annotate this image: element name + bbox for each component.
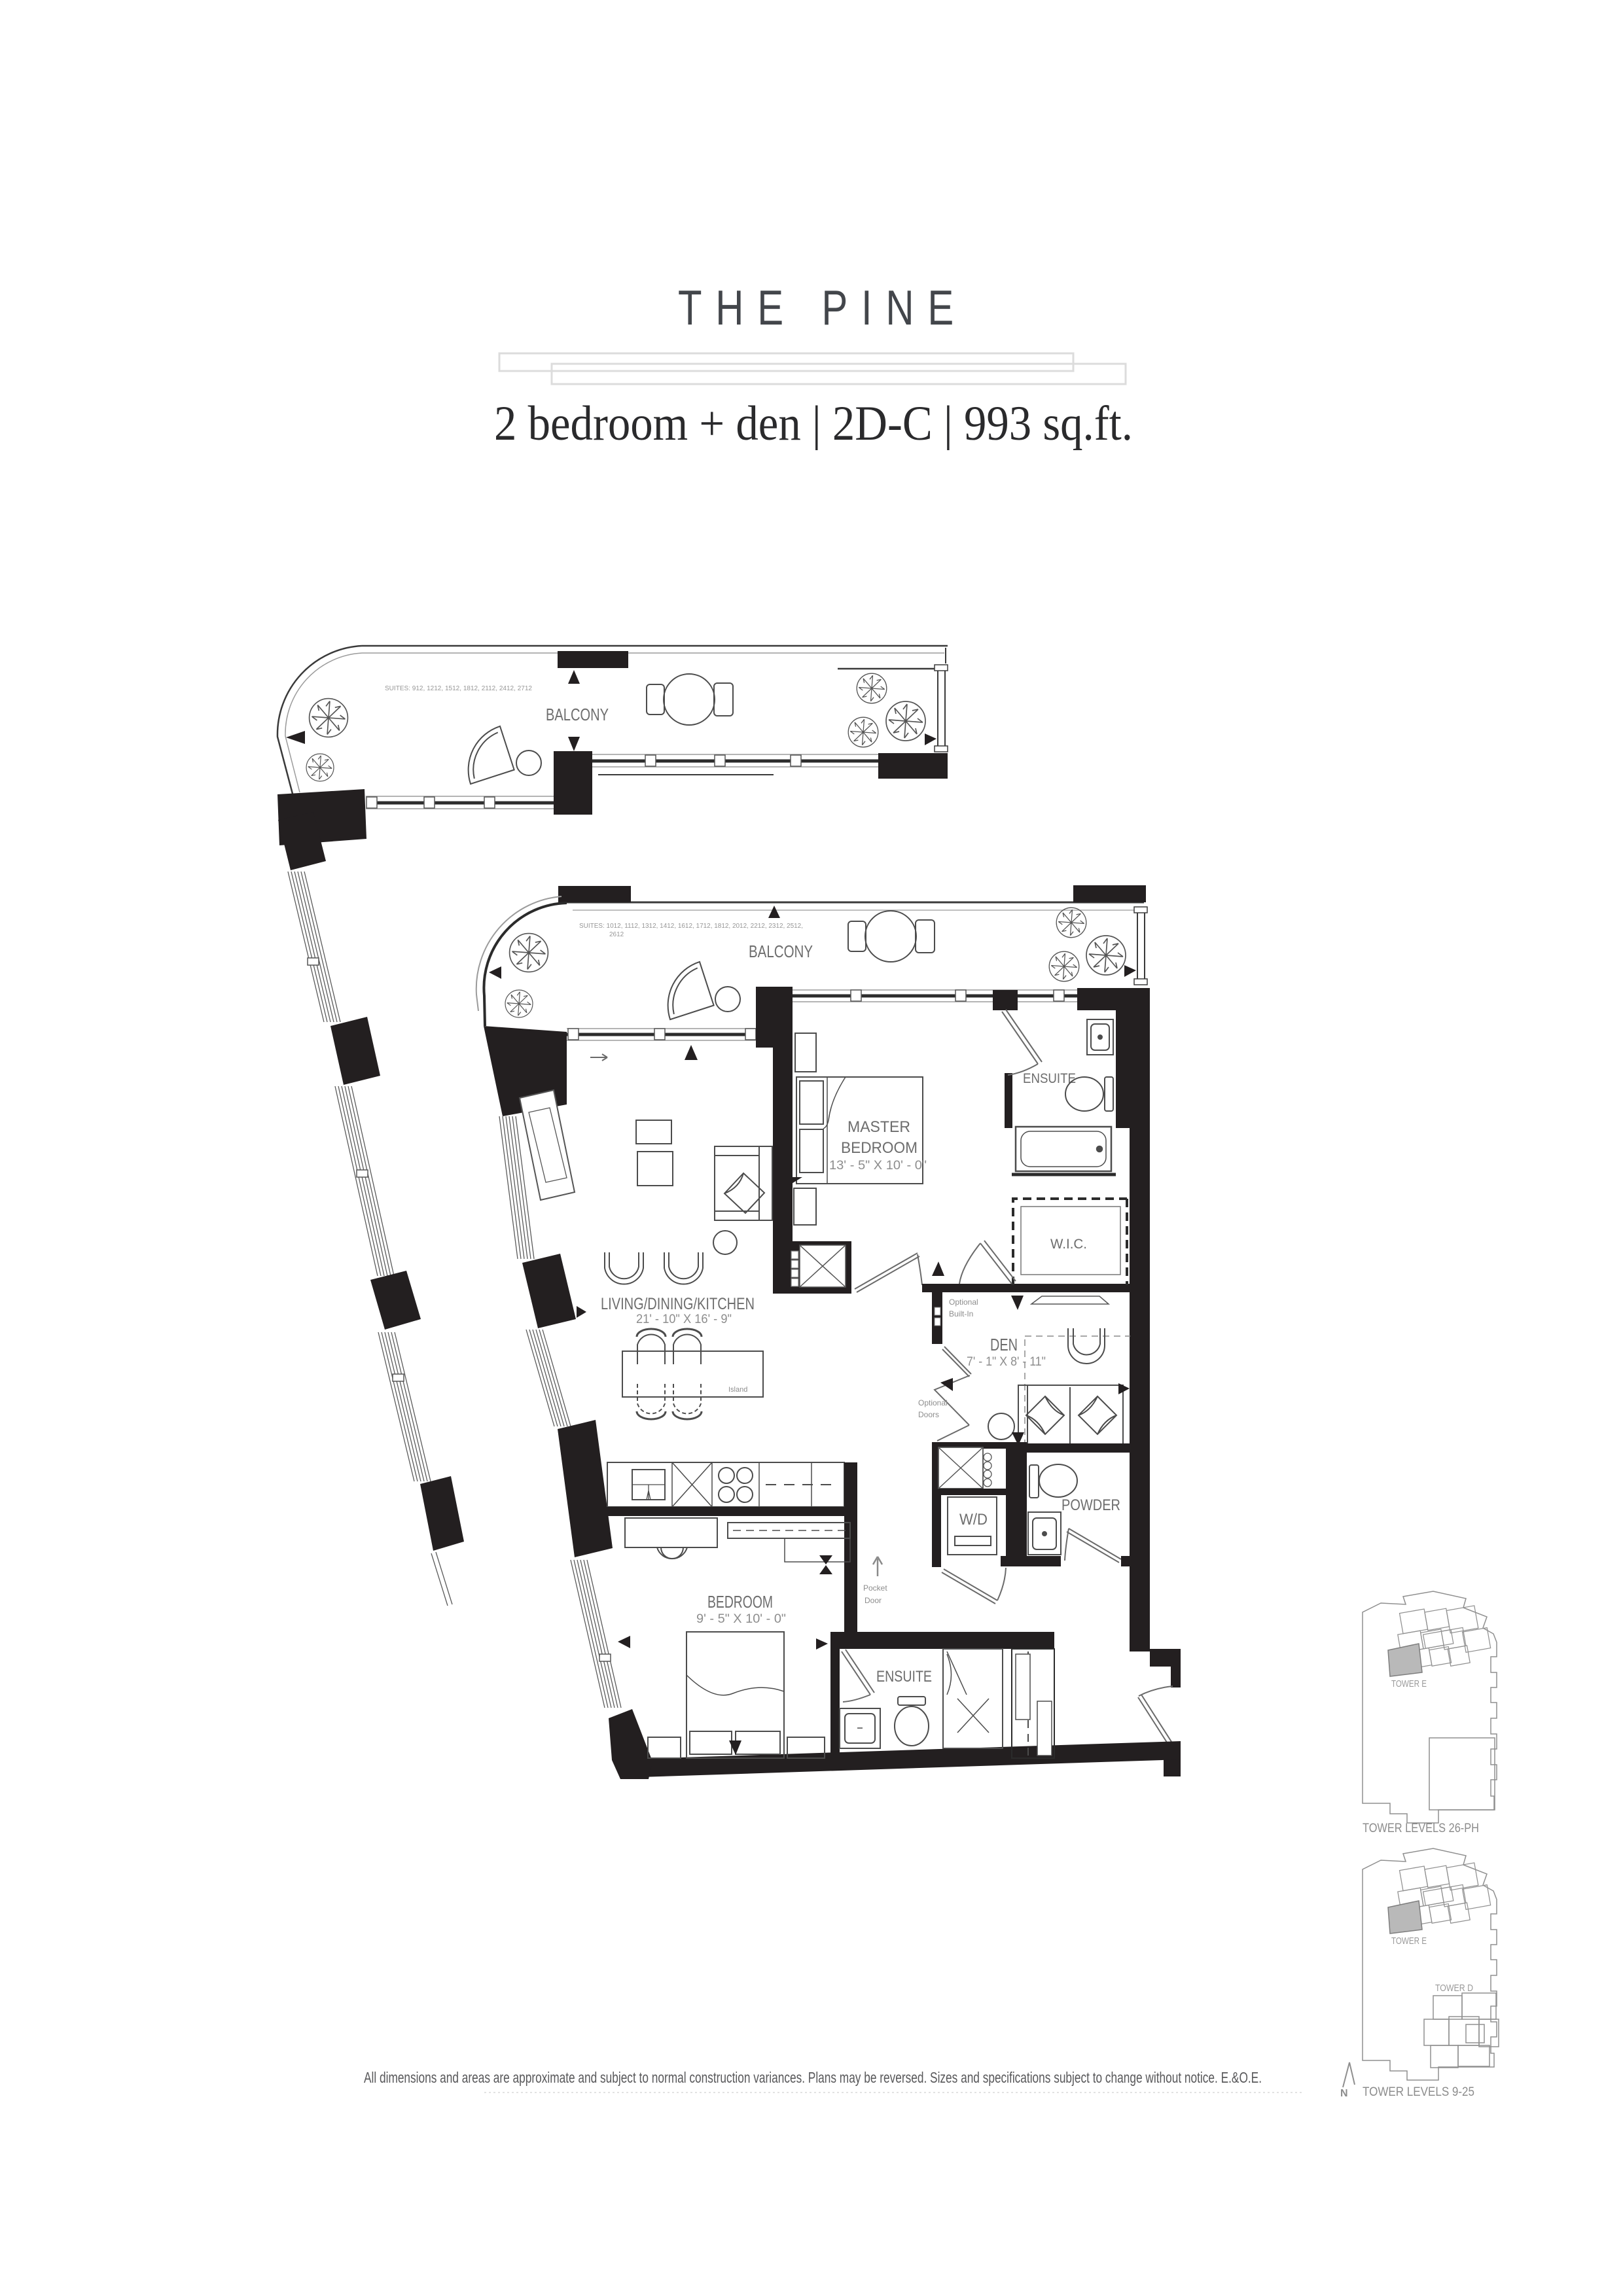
svg-text:W.I.C.: W.I.C.: [1050, 1237, 1087, 1252]
svg-text:TOWER LEVELS 26-PH: TOWER LEVELS 26-PH: [1363, 1822, 1479, 1835]
svg-text:BEDROOM: BEDROOM: [841, 1139, 918, 1157]
svg-text:Island: Island: [728, 1386, 747, 1394]
svg-text:ENSUITE: ENSUITE: [876, 1668, 932, 1686]
svg-text:DEN: DEN: [990, 1335, 1018, 1354]
svg-text:2612: 2612: [609, 931, 624, 938]
svg-text:Door: Door: [865, 1596, 882, 1605]
svg-text:THE PINE: THE PINE: [678, 280, 967, 335]
svg-text:ENSUITE: ENSUITE: [1023, 1071, 1076, 1086]
svg-text:TOWER E: TOWER E: [1391, 1678, 1427, 1689]
svg-text:TOWER D: TOWER D: [1435, 1983, 1473, 1994]
svg-text:W/D: W/D: [959, 1511, 988, 1528]
svg-text:BALCONY: BALCONY: [546, 705, 609, 724]
svg-text:9' - 5" X 10' - 0": 9' - 5" X 10' - 0": [696, 1612, 786, 1626]
svg-text:Doors: Doors: [918, 1410, 939, 1419]
svg-text:N: N: [1340, 2088, 1348, 2099]
svg-text:Optional: Optional: [918, 1398, 948, 1407]
svg-text:BEDROOM: BEDROOM: [707, 1592, 773, 1612]
svg-text:Optional: Optional: [949, 1298, 978, 1307]
svg-text:BALCONY: BALCONY: [749, 942, 813, 961]
svg-text:13' - 5" X 10' - 0": 13' - 5" X 10' - 0": [829, 1159, 927, 1173]
svg-text:2 bedroom + den | 2D-C | 993 s: 2 bedroom + den | 2D-C | 993 sq.ft.: [494, 397, 1133, 451]
svg-text:SUITES: 1012, 1112, 1312, 1412: SUITES: 1012, 1112, 1312, 1412, 1612, 17…: [579, 923, 803, 930]
svg-text:POWDER: POWDER: [1061, 1496, 1120, 1514]
svg-text:Built-In: Built-In: [949, 1309, 973, 1318]
svg-text:Pocket: Pocket: [863, 1583, 887, 1593]
svg-text:SUITES: 912, 1212, 1512, 1812,: SUITES: 912, 1212, 1512, 1812, 2112, 241…: [385, 685, 532, 692]
svg-text:MASTER: MASTER: [847, 1118, 910, 1136]
svg-text:7' - 1" X 8' - 11": 7' - 1" X 8' - 11": [967, 1355, 1046, 1369]
svg-text:TOWER LEVELS 9-25: TOWER LEVELS 9-25: [1363, 2085, 1474, 2099]
svg-text:21' - 10" X 16' - 9": 21' - 10" X 16' - 9": [636, 1313, 732, 1326]
svg-text:All dimensions and areas are a: All dimensions and areas are approximate…: [364, 2069, 1262, 2086]
svg-text:TOWER E: TOWER E: [1391, 1935, 1427, 1947]
svg-text:LIVING/DINING/KITCHEN: LIVING/DINING/KITCHEN: [601, 1295, 755, 1313]
